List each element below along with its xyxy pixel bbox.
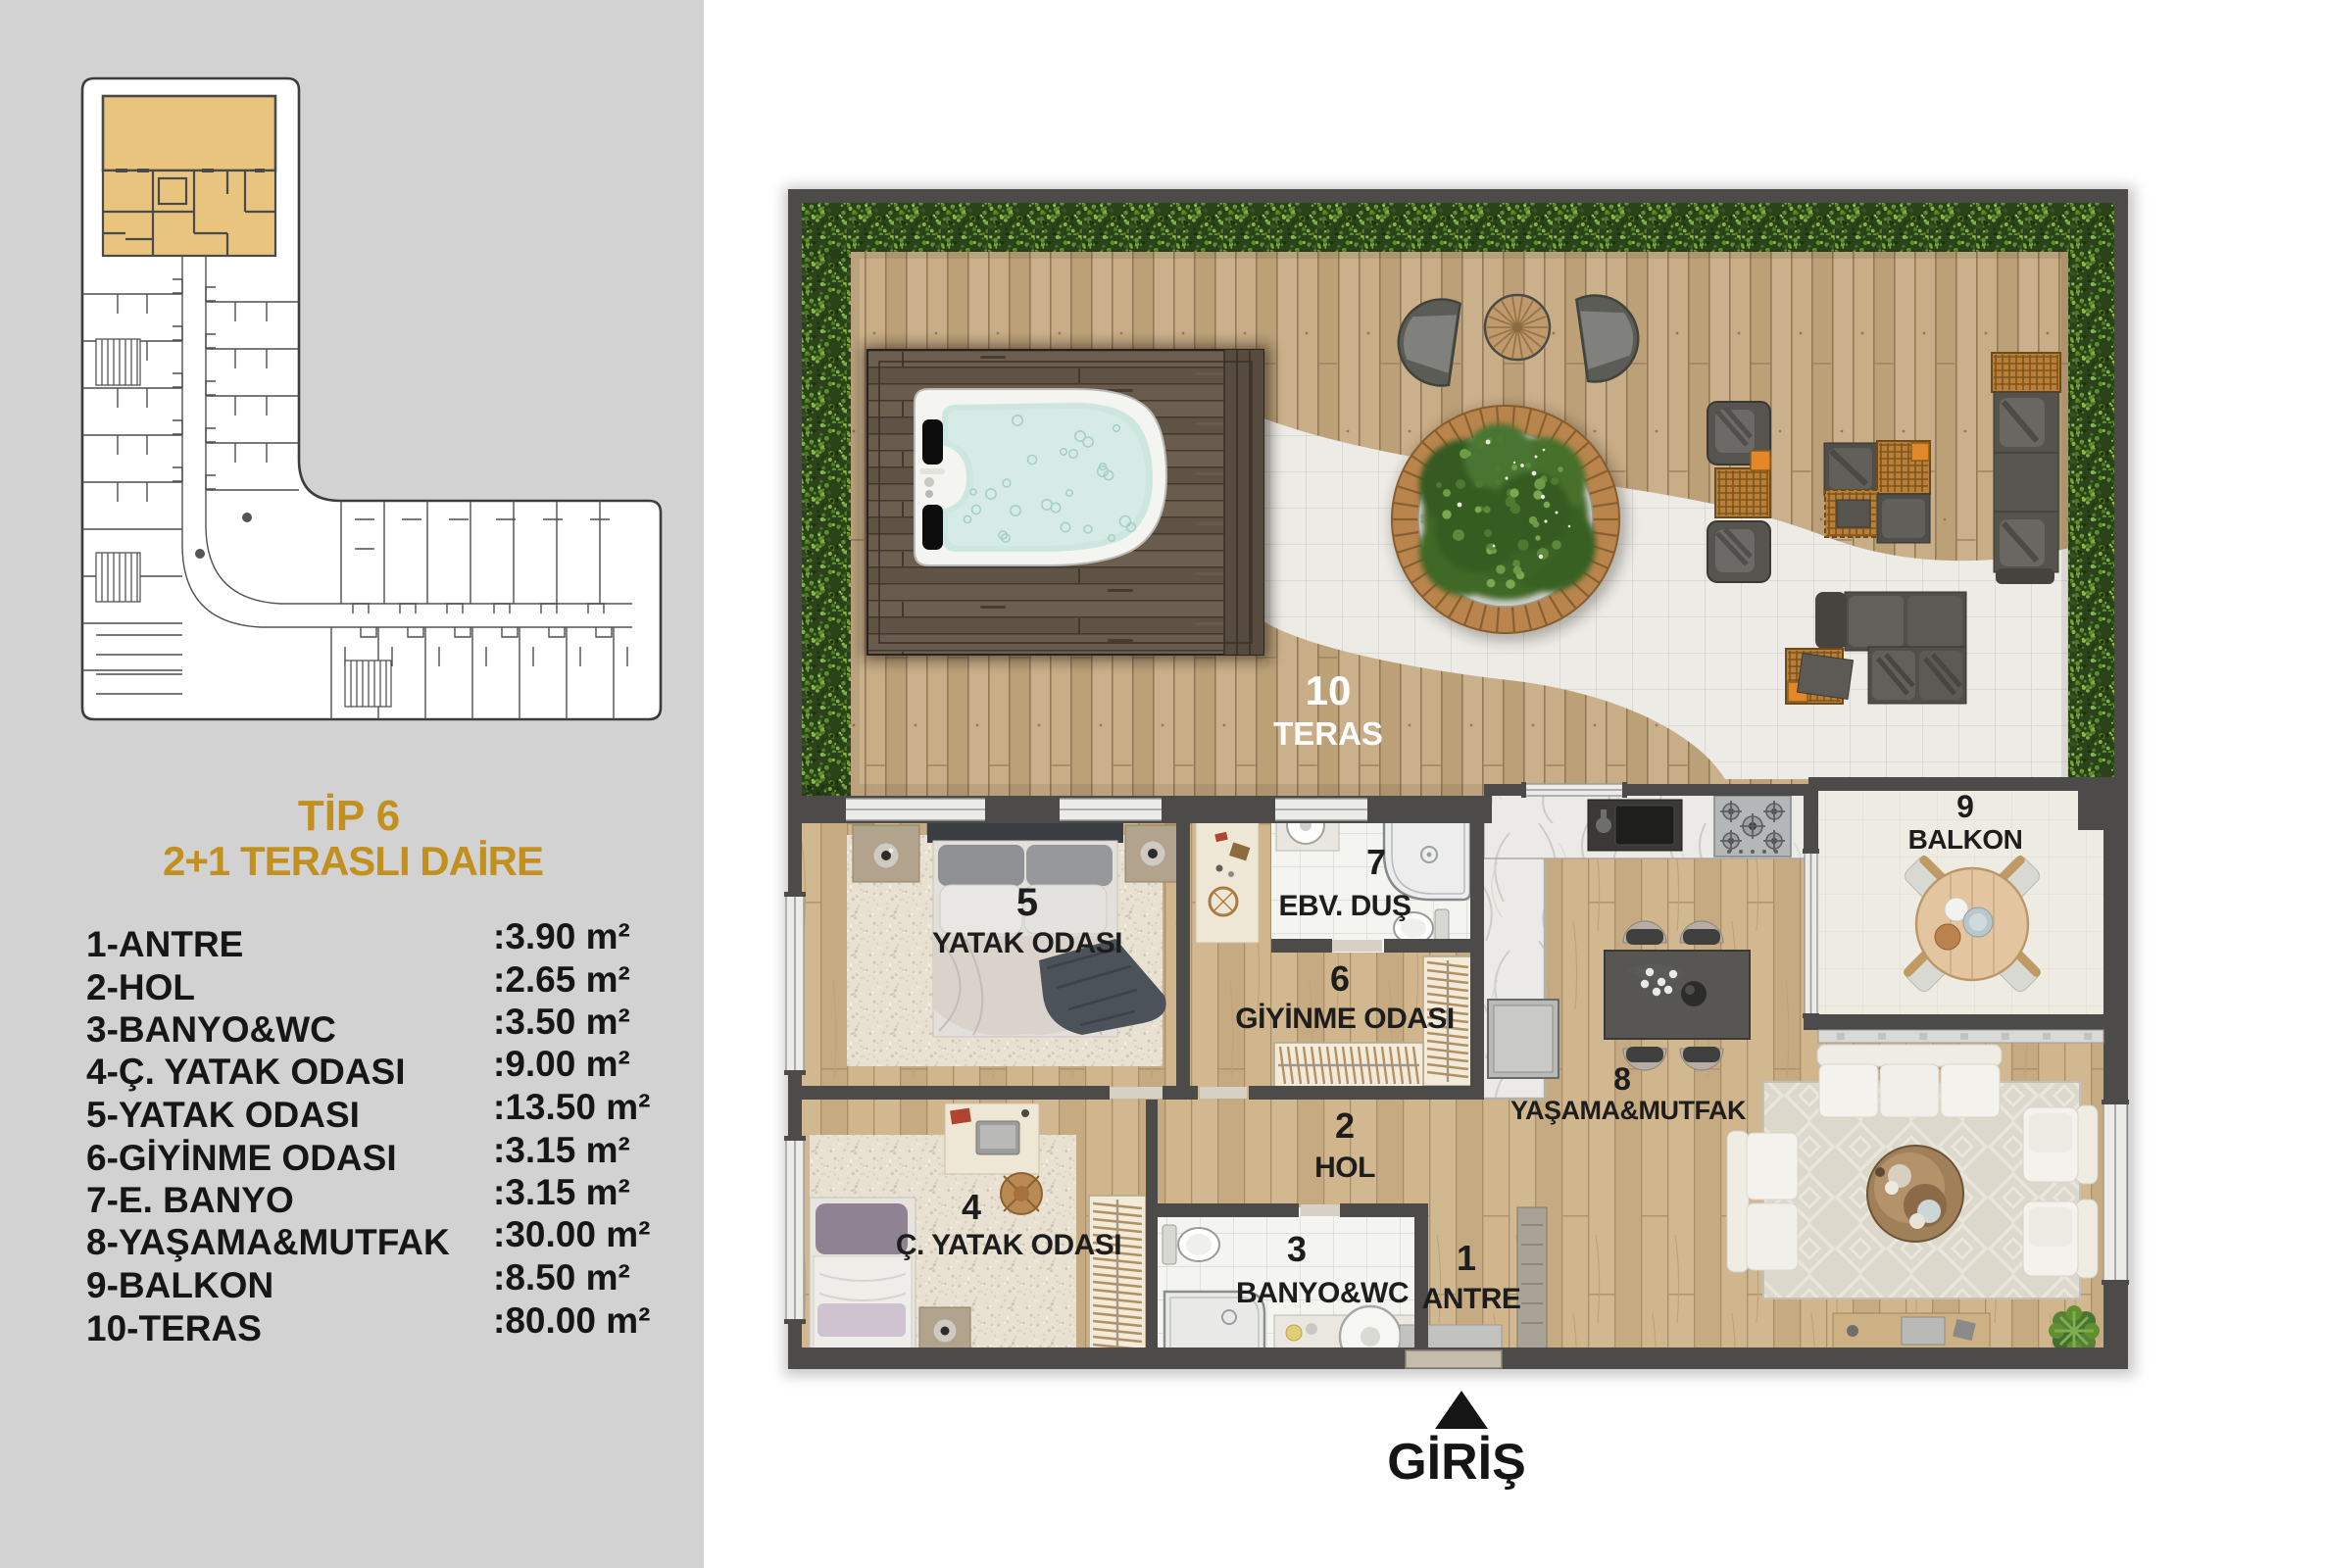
svg-text:2+1 TERASLI DAİRE: 2+1 TERASLI DAİRE xyxy=(163,838,543,884)
svg-text::3.15 m²: :3.15 m² xyxy=(493,1172,630,1212)
svg-text::9.00 m²: :9.00 m² xyxy=(493,1044,630,1084)
svg-text:ANTRE: ANTRE xyxy=(1422,1283,1521,1315)
svg-text:GİYİNME ODASI: GİYİNME ODASI xyxy=(1235,1003,1455,1035)
svg-text:TERAS: TERAS xyxy=(1273,715,1383,752)
svg-text:BALKON: BALKON xyxy=(1908,824,2023,855)
svg-text::80.00 m²: :80.00 m² xyxy=(493,1300,650,1341)
svg-text:EBV. DUŞ: EBV. DUŞ xyxy=(1279,890,1411,922)
svg-text:BANYO&WC: BANYO&WC xyxy=(1236,1277,1409,1309)
svg-text:8-YAŞAMA&MUTFAK: 8-YAŞAMA&MUTFAK xyxy=(86,1222,450,1262)
svg-text:4-Ç. YATAK ODASI: 4-Ç. YATAK ODASI xyxy=(86,1052,406,1092)
svg-text:6-GİYİNME ODASI: 6-GİYİNME ODASI xyxy=(86,1138,397,1178)
svg-text:YAŞAMA&MUTFAK: YAŞAMA&MUTFAK xyxy=(1510,1096,1747,1125)
svg-text:10-TERAS: 10-TERAS xyxy=(86,1308,262,1348)
svg-text:GİRİŞ: GİRİŞ xyxy=(1387,1434,1526,1491)
svg-text::3.50 m²: :3.50 m² xyxy=(493,1002,630,1042)
svg-text::3.15 m²: :3.15 m² xyxy=(493,1130,630,1170)
svg-text:4: 4 xyxy=(962,1187,981,1227)
svg-text::3.90 m²: :3.90 m² xyxy=(493,916,630,956)
svg-text:HOL: HOL xyxy=(1314,1151,1375,1184)
svg-text:Ç. YATAK ODASI: Ç. YATAK ODASI xyxy=(896,1229,1121,1261)
svg-text:2: 2 xyxy=(1335,1105,1355,1146)
svg-text:3: 3 xyxy=(1287,1229,1307,1269)
svg-text:2-HOL: 2-HOL xyxy=(86,967,195,1007)
svg-text:8: 8 xyxy=(1613,1061,1631,1097)
svg-text:5: 5 xyxy=(1016,881,1038,924)
svg-text:6: 6 xyxy=(1330,958,1350,999)
svg-text:1-ANTRE: 1-ANTRE xyxy=(86,924,243,964)
svg-text:7: 7 xyxy=(1366,842,1386,882)
svg-text:3-BANYO&WC: 3-BANYO&WC xyxy=(86,1009,336,1050)
svg-text:1: 1 xyxy=(1457,1238,1476,1278)
svg-text:9-BALKON: 9-BALKON xyxy=(86,1265,273,1305)
svg-text:TİP 6: TİP 6 xyxy=(298,792,400,840)
svg-text:7-E. BANYO: 7-E. BANYO xyxy=(86,1180,294,1220)
svg-text::8.50 m²: :8.50 m² xyxy=(493,1257,630,1298)
svg-text::30.00 m²: :30.00 m² xyxy=(493,1214,650,1254)
svg-text::13.50 m²: :13.50 m² xyxy=(493,1087,650,1127)
svg-text:YATAK ODASI: YATAK ODASI xyxy=(932,927,1122,959)
svg-text::2.65 m²: :2.65 m² xyxy=(493,959,630,1000)
svg-text:5-YATAK ODASI: 5-YATAK ODASI xyxy=(86,1095,360,1135)
svg-text:10: 10 xyxy=(1306,667,1352,713)
svg-text:9: 9 xyxy=(1956,789,1974,824)
